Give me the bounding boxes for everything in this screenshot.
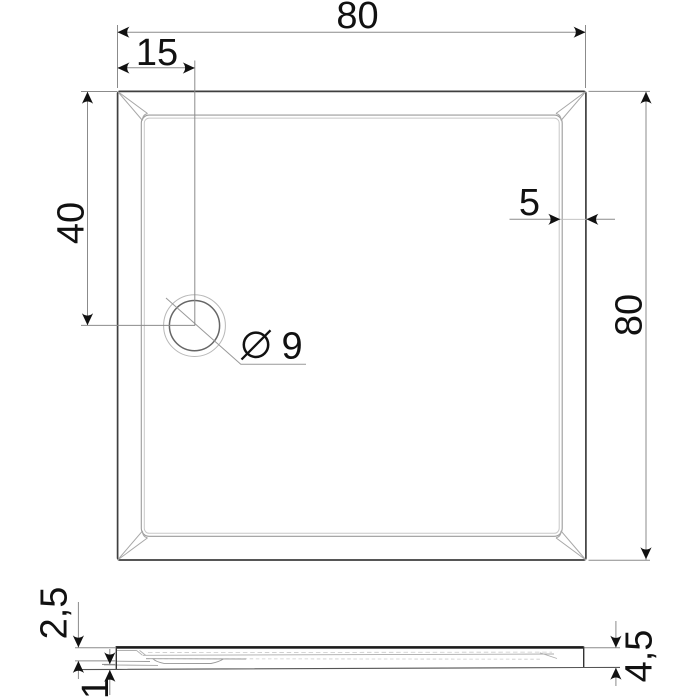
svg-text:40: 40 [50,202,92,244]
svg-text:15: 15 [136,32,178,74]
svg-text:2,5: 2,5 [34,587,76,640]
svg-text:1: 1 [75,678,117,699]
svg-text:80: 80 [609,294,651,336]
svg-text:9: 9 [282,326,303,368]
svg-text:4,5: 4,5 [619,630,661,683]
svg-text:80: 80 [336,0,378,37]
svg-text:5: 5 [519,182,540,224]
